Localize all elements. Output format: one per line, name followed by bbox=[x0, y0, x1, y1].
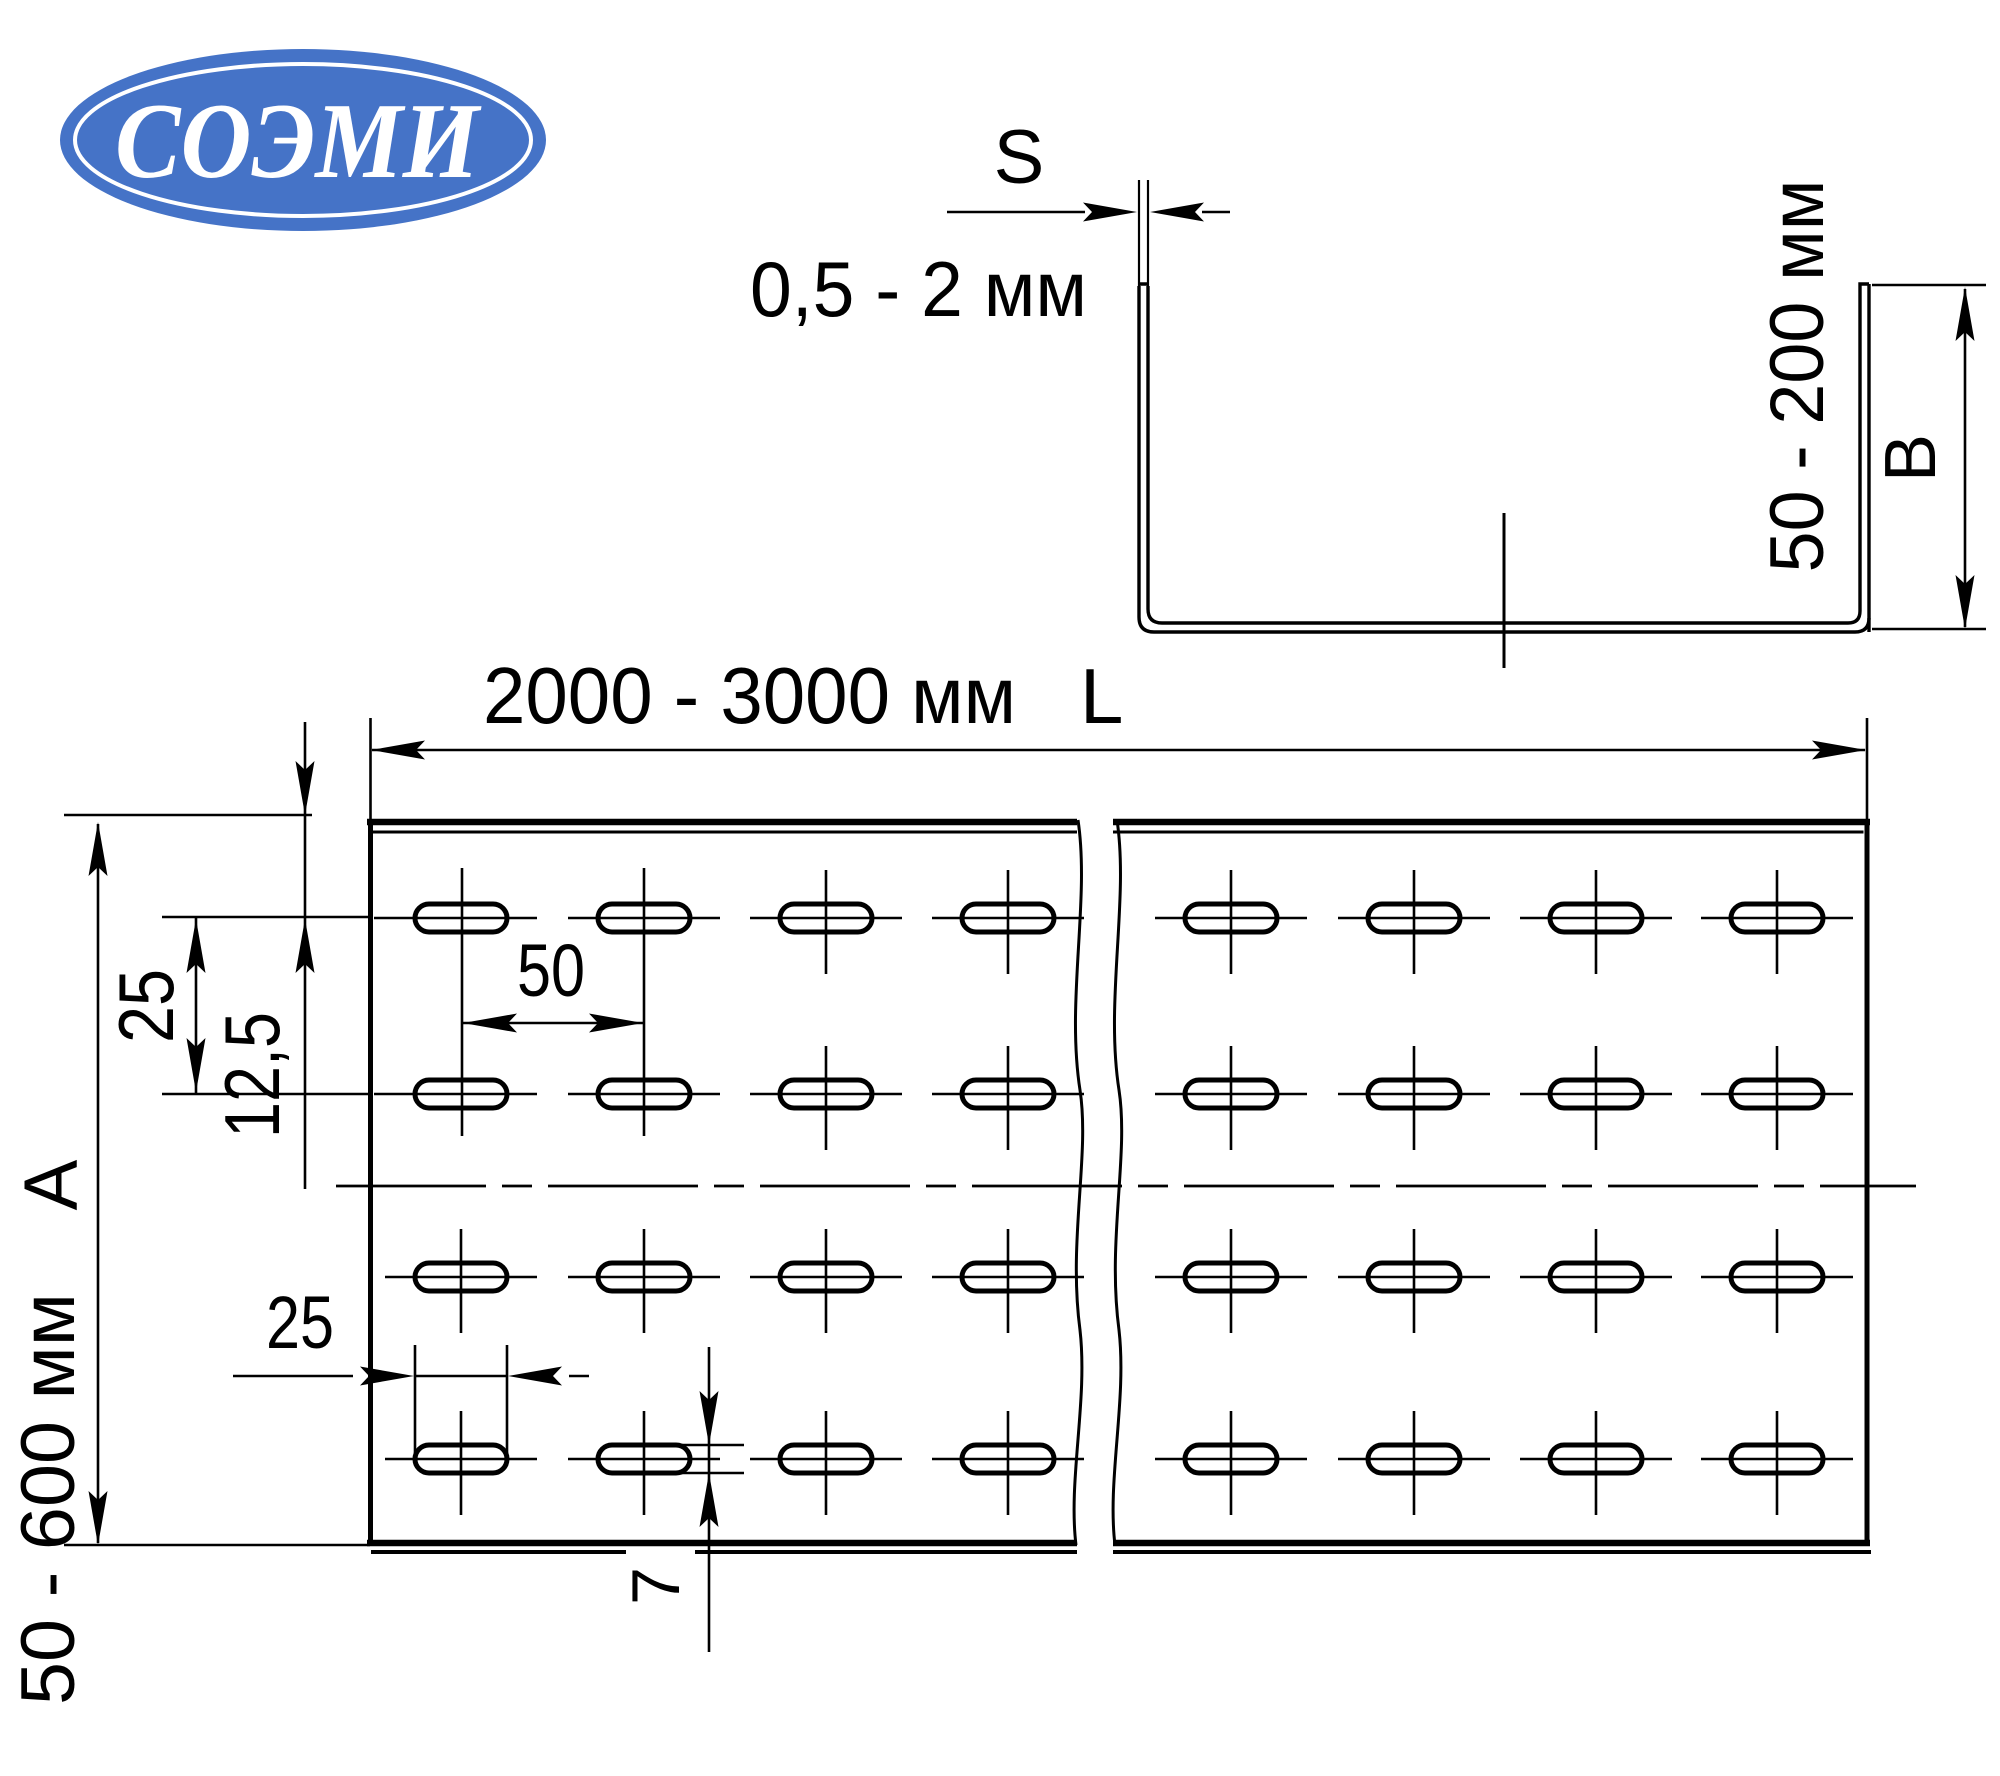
svg-text:2000 - 3000 мм: 2000 - 3000 мм bbox=[483, 651, 1016, 740]
svg-text:12,5: 12,5 bbox=[208, 1012, 296, 1138]
svg-text:СОЭМИ: СОЭМИ bbox=[115, 82, 482, 201]
svg-text:25: 25 bbox=[266, 1281, 334, 1364]
svg-text:0,5 - 2 мм: 0,5 - 2 мм bbox=[750, 245, 1087, 333]
svg-text:50 - 200 мм: 50 - 200 мм bbox=[1755, 180, 1840, 573]
svg-text:50: 50 bbox=[517, 929, 585, 1012]
svg-text:A: A bbox=[9, 1159, 94, 1210]
svg-text:50 - 600 мм: 50 - 600 мм bbox=[6, 1293, 91, 1705]
svg-text:7: 7 bbox=[618, 1567, 694, 1605]
svg-text:25: 25 bbox=[102, 969, 190, 1043]
svg-text:B: B bbox=[1871, 434, 1951, 482]
svg-text:S: S bbox=[994, 115, 1045, 200]
svg-text:L: L bbox=[1080, 652, 1123, 740]
